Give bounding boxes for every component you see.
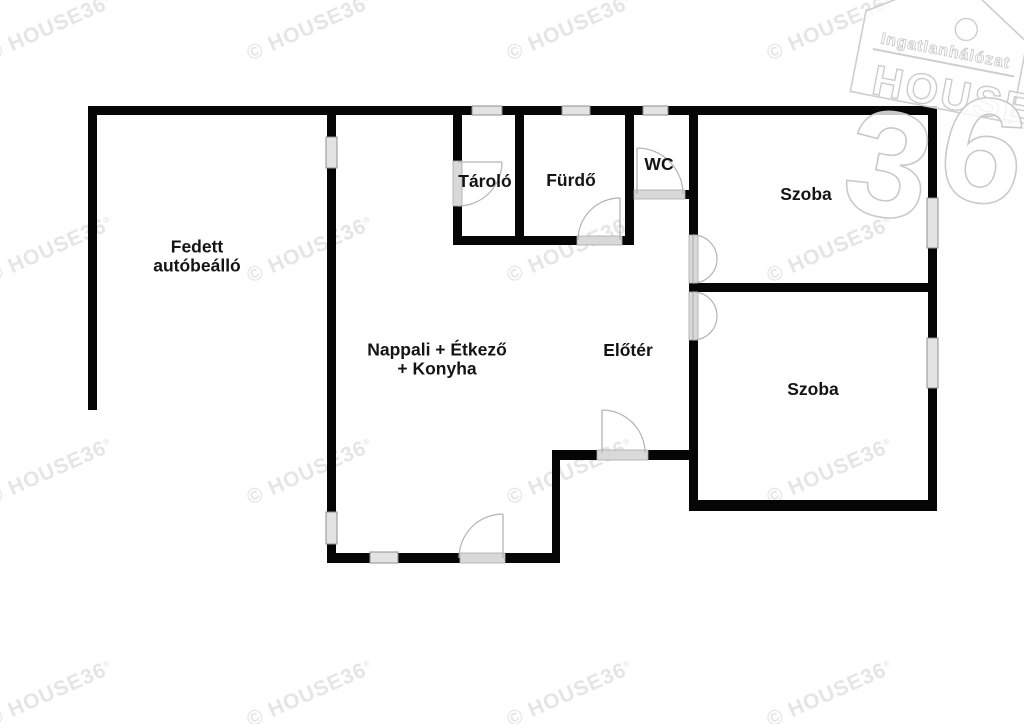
logo-group: Ingatlanhálózat HOUSE 3 6 bbox=[822, 0, 1024, 272]
floorplan-page: © HOUSE36®© HOUSE36®© HOUSE36®© HOUSE36®… bbox=[0, 0, 1024, 724]
brand-logo: Ingatlanhálózat HOUSE 3 6 bbox=[0, 0, 1024, 724]
logo-digit-3: 3 bbox=[832, 74, 946, 255]
